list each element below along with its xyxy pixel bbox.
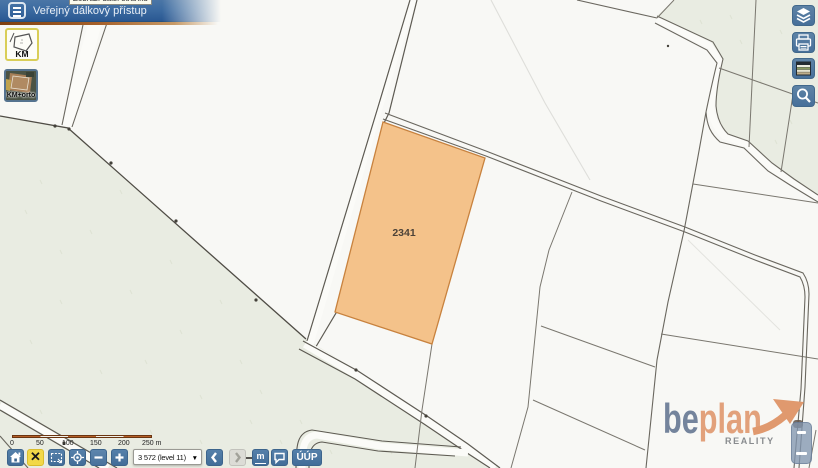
svg-text:KM: KM: [15, 49, 28, 59]
svg-text:2341: 2341: [392, 227, 416, 239]
svg-text:KM+orto: KM+orto: [7, 92, 36, 99]
